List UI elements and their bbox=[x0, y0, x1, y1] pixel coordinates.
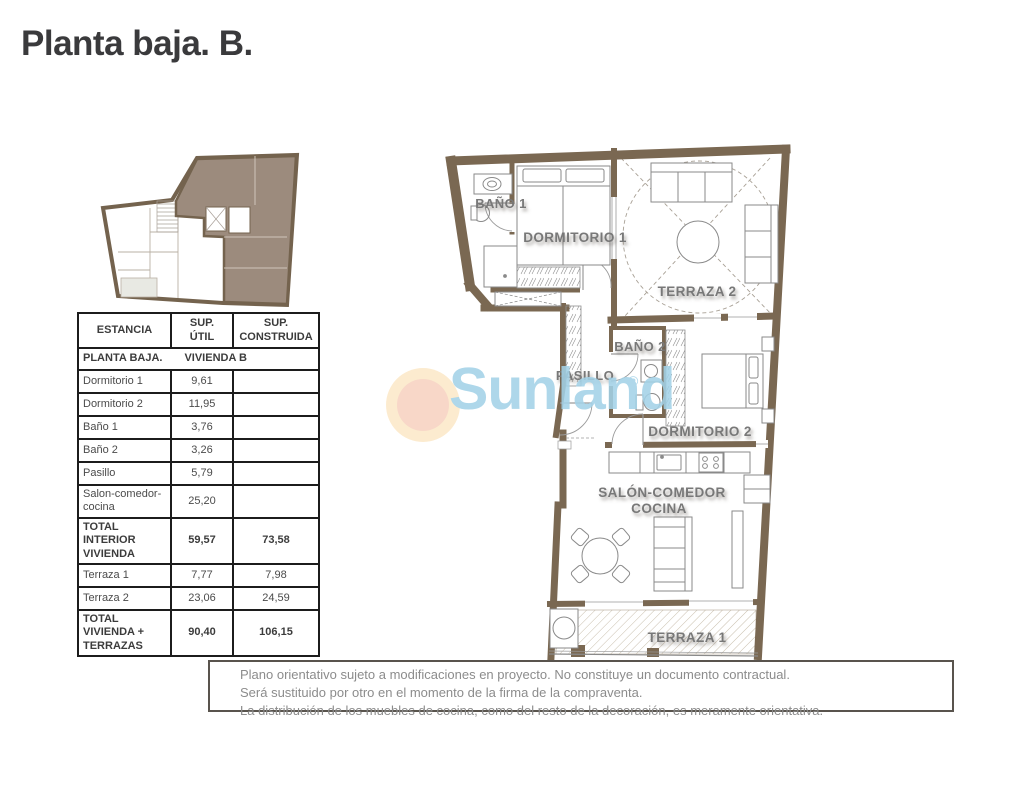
table-row: TOTAL VIVIENDA + TERRAZAS90,40106,15 bbox=[78, 610, 319, 656]
util-cell: 11,95 bbox=[171, 393, 233, 416]
header-estancia: ESTANCIA bbox=[78, 313, 171, 348]
salon-dining-table bbox=[570, 527, 631, 584]
util-cell: 9,61 bbox=[171, 370, 233, 393]
label-dormitorio2: DORMITORIO 2 bbox=[648, 424, 752, 439]
wall-top bbox=[451, 149, 786, 161]
estancia-cell: Terraza 2 bbox=[78, 587, 171, 610]
label-salon-line1: SALÓN-COMEDOR bbox=[598, 485, 725, 500]
estancia-cell: Terraza 1 bbox=[78, 564, 171, 587]
window-salon-b bbox=[689, 597, 753, 606]
construida-cell bbox=[233, 416, 319, 439]
table-header-row: ESTANCIA SUP. ÚTIL SUP. CONSTRUIDA bbox=[78, 313, 319, 348]
dorm2-nightstand-top bbox=[762, 337, 774, 351]
apartment-floor-plan: BAÑO 1 DORMITORIO 1 TERRAZA 2 BAÑO 2 PAS… bbox=[440, 140, 795, 665]
section-cell: PLANTA BAJA.VIVIENDA B bbox=[78, 348, 319, 370]
estancia-cell: Pasillo bbox=[78, 462, 171, 485]
window-terraza2-a bbox=[694, 314, 721, 323]
terraza2-sofa bbox=[651, 163, 732, 202]
terraza2-side-unit bbox=[745, 205, 778, 283]
estancia-cell: Salon-comedor-cocina bbox=[78, 485, 171, 518]
label-bano2: BAÑO 2 bbox=[614, 339, 666, 354]
construida-cell bbox=[233, 485, 319, 518]
table-row: Terraza 17,777,98 bbox=[78, 564, 319, 587]
dorm2-wardrobe bbox=[666, 330, 685, 426]
disclaimer-line-3: La distribución de los muebles de cocina… bbox=[240, 702, 942, 720]
table-row: Salon-comedor-cocina25,20 bbox=[78, 485, 319, 518]
table-row: TOTAL INTERIOR VIVIENDA59,5773,58 bbox=[78, 518, 319, 564]
window-salon-a bbox=[585, 598, 643, 607]
util-cell: 5,79 bbox=[171, 462, 233, 485]
construida-cell bbox=[233, 439, 319, 462]
table-row: Dormitorio 211,95 bbox=[78, 393, 319, 416]
salon-sofa bbox=[654, 517, 692, 591]
table-row: Dormitorio 19,61 bbox=[78, 370, 319, 393]
dorm2-bed bbox=[702, 354, 763, 408]
kitchen-cabinet bbox=[744, 475, 770, 503]
door-dorm2 bbox=[612, 414, 643, 449]
floorplan-sheet: { "page": { "title": "Planta baja. B." }… bbox=[0, 0, 1024, 800]
bano2-sink bbox=[641, 360, 662, 382]
label-pasillo: PASILLO bbox=[556, 368, 614, 383]
bano2-toilet bbox=[636, 394, 660, 411]
construida-cell: 73,58 bbox=[233, 518, 319, 564]
dorm1-wardrobe bbox=[517, 267, 580, 288]
storage-box bbox=[495, 292, 561, 306]
salon-tv-unit bbox=[732, 511, 743, 588]
header-sup-construida: SUP. CONSTRUIDA bbox=[233, 313, 319, 348]
area-table: ESTANCIA SUP. ÚTIL SUP. CONSTRUIDA PLANT… bbox=[77, 312, 320, 657]
construida-cell: 24,59 bbox=[233, 587, 319, 610]
label-terraza2: TERRAZA 2 bbox=[658, 284, 737, 299]
util-cell: 3,76 bbox=[171, 416, 233, 439]
util-cell: 7,77 bbox=[171, 564, 233, 587]
dorm2-nightstand-bottom bbox=[762, 409, 774, 423]
section-right: VIVIENDA B bbox=[184, 352, 247, 364]
table-row: Pasillo5,79 bbox=[78, 462, 319, 485]
label-bano1: BAÑO 1 bbox=[475, 196, 527, 211]
area-table-body: Dormitorio 19,61Dormitorio 211,95Baño 13… bbox=[78, 370, 319, 656]
estancia-cell: Dormitorio 2 bbox=[78, 393, 171, 416]
estancia-cell: Baño 2 bbox=[78, 439, 171, 462]
construida-cell: 7,98 bbox=[233, 564, 319, 587]
wall-left-slant bbox=[451, 161, 470, 286]
estancia-cell: Dormitorio 1 bbox=[78, 370, 171, 393]
bano1-washbasin bbox=[474, 174, 512, 194]
construida-cell: 106,15 bbox=[233, 610, 319, 656]
util-cell: 25,20 bbox=[171, 485, 233, 518]
building-overview-plan bbox=[95, 143, 310, 311]
estancia-cell: TOTAL VIVIENDA + TERRAZAS bbox=[78, 610, 171, 656]
dorm1-bed bbox=[517, 166, 610, 265]
kitchen-stove bbox=[699, 453, 723, 472]
table-section-row: PLANTA BAJA.VIVIENDA B bbox=[78, 348, 319, 370]
bano1-shower bbox=[484, 246, 517, 287]
label-dormitorio1: DORMITORIO 1 bbox=[523, 230, 627, 245]
terraza2-round-table bbox=[677, 221, 719, 263]
shower-drain bbox=[504, 275, 507, 278]
disclaimer-box: Plano orientativo sujeto a modificacione… bbox=[208, 660, 954, 712]
disclaimer-line-2: Será sustituido por otro en el momento d… bbox=[240, 684, 942, 702]
window-dorm2 bbox=[756, 440, 768, 448]
estancia-cell: TOTAL INTERIOR VIVIENDA bbox=[78, 518, 171, 564]
table-row: Baño 13,76 bbox=[78, 416, 319, 439]
overview-patio bbox=[121, 278, 157, 297]
construida-cell bbox=[233, 462, 319, 485]
terraza1-utility bbox=[550, 609, 578, 648]
estancia-cell: Baño 1 bbox=[78, 416, 171, 439]
label-salon-line2: COCINA bbox=[631, 501, 687, 516]
util-cell: 59,57 bbox=[171, 518, 233, 564]
window-salon-left bbox=[558, 441, 571, 449]
page-title: Planta baja. B. bbox=[21, 24, 253, 64]
disclaimer-line-1: Plano orientativo sujeto a modificacione… bbox=[240, 666, 942, 684]
table-row: Terraza 223,0624,59 bbox=[78, 587, 319, 610]
table-row: Baño 23,26 bbox=[78, 439, 319, 462]
section-left: PLANTA BAJA. bbox=[83, 352, 162, 364]
header-sup-util: SUP. ÚTIL bbox=[171, 313, 233, 348]
kitchen-counter bbox=[609, 452, 750, 473]
util-cell: 90,40 bbox=[171, 610, 233, 656]
construida-cell bbox=[233, 393, 319, 416]
construida-cell bbox=[233, 370, 319, 393]
util-cell: 3,26 bbox=[171, 439, 233, 462]
window-terraza2-b bbox=[728, 313, 757, 322]
util-cell: 23,06 bbox=[171, 587, 233, 610]
label-terraza1: TERRAZA 1 bbox=[648, 630, 727, 645]
